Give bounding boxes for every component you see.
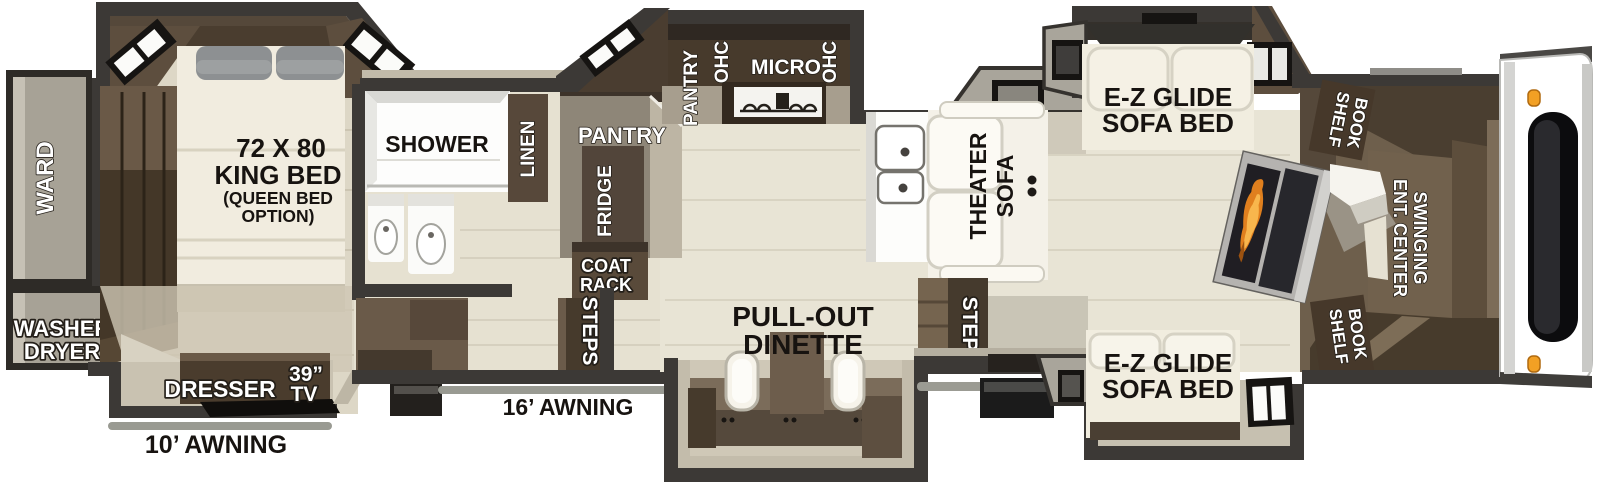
svg-text:MICRO: MICRO bbox=[751, 56, 821, 79]
svg-text:SHOWER: SHOWER bbox=[385, 131, 489, 157]
svg-text:OPTION): OPTION) bbox=[242, 206, 315, 226]
svg-text:SWINGING: SWINGING bbox=[1410, 192, 1430, 285]
svg-text:PANTRY: PANTRY bbox=[578, 123, 666, 148]
svg-text:TV: TV bbox=[291, 383, 318, 406]
svg-text:10’ AWNING: 10’ AWNING bbox=[145, 431, 287, 459]
svg-text:KING BED: KING BED bbox=[214, 160, 341, 190]
svg-text:FRIDGE: FRIDGE bbox=[595, 165, 616, 237]
svg-text:THEATER: THEATER bbox=[965, 132, 991, 239]
svg-text:SOFA BED: SOFA BED bbox=[1102, 374, 1234, 404]
svg-text:WASHER: WASHER bbox=[14, 316, 111, 341]
svg-text:STEPS: STEPS bbox=[578, 297, 601, 366]
svg-text:OHC: OHC bbox=[820, 41, 841, 84]
svg-text:COAT: COAT bbox=[581, 256, 631, 276]
svg-text:16’ AWNING: 16’ AWNING bbox=[503, 394, 634, 420]
svg-text:72 X 80: 72 X 80 bbox=[236, 133, 326, 163]
svg-text:DRYER: DRYER bbox=[24, 339, 100, 364]
svg-text:OHC: OHC bbox=[712, 41, 733, 84]
svg-text:PULL-OUT: PULL-OUT bbox=[732, 301, 874, 332]
svg-text:PANTRY: PANTRY bbox=[681, 50, 702, 126]
svg-text:ENT. CENTER: ENT. CENTER bbox=[1390, 179, 1410, 297]
svg-text:(QUEEN BED: (QUEEN BED bbox=[223, 188, 333, 208]
svg-text:WARD: WARD bbox=[32, 141, 59, 214]
svg-text:LINEN: LINEN bbox=[518, 121, 539, 178]
svg-text:SOFA BED: SOFA BED bbox=[1102, 108, 1234, 138]
svg-text:DINETTE: DINETTE bbox=[743, 329, 863, 360]
svg-text:SOFA: SOFA bbox=[992, 155, 1018, 218]
svg-text:DRESSER: DRESSER bbox=[164, 376, 276, 402]
